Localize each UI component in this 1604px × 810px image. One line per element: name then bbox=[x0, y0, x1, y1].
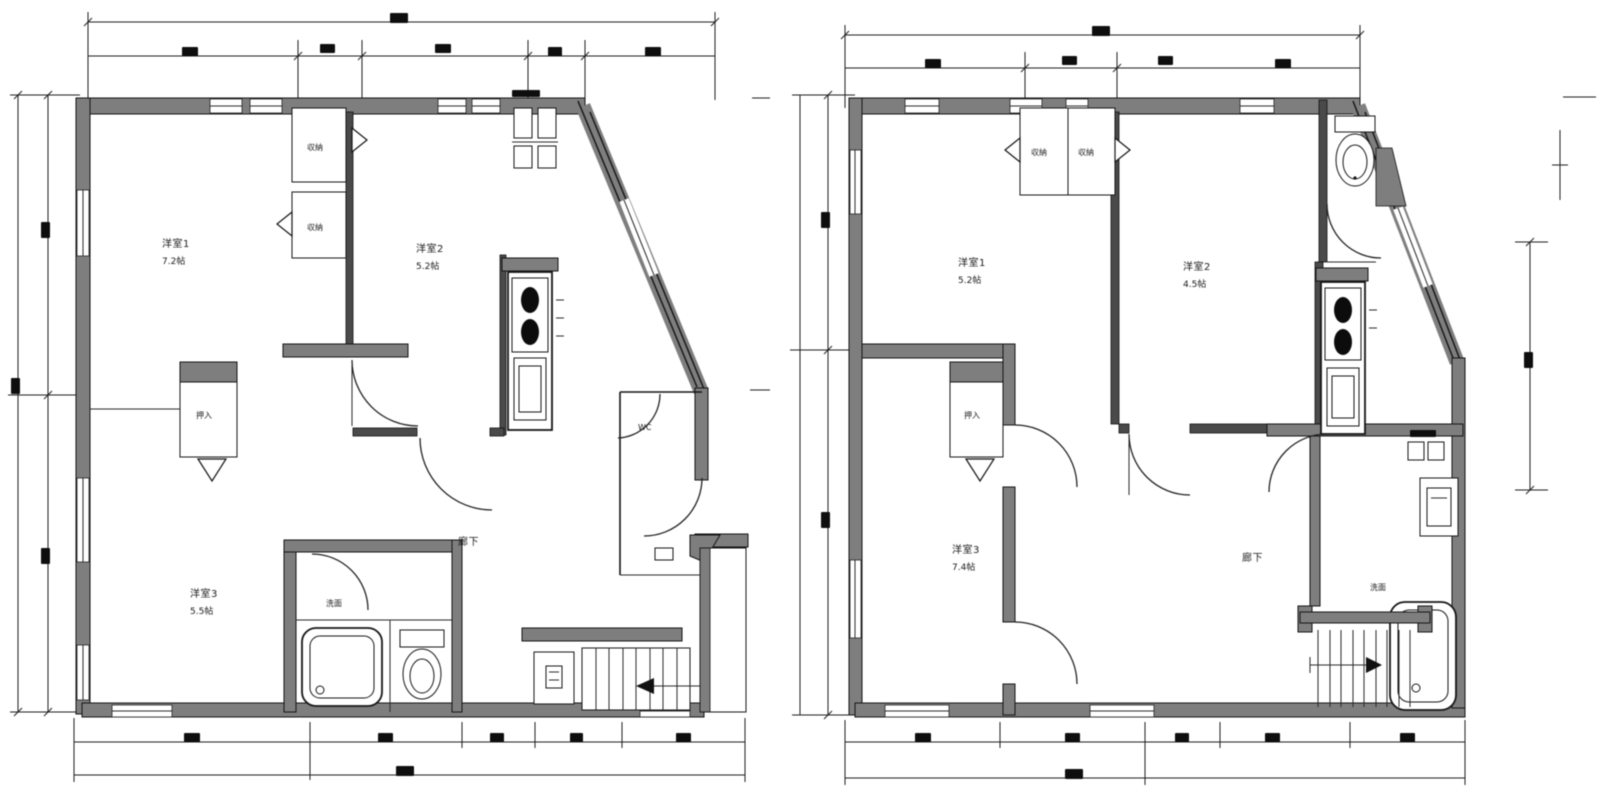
closet-top-1: 収納 bbox=[292, 108, 367, 182]
wc-fixture bbox=[655, 548, 673, 560]
closet-oshiire: 押入 bbox=[90, 362, 237, 481]
room3-label: 洋室3 bbox=[190, 587, 218, 600]
closet-label: 収納 bbox=[1078, 147, 1094, 157]
room1-label: 洋室1 bbox=[958, 256, 986, 269]
room1-label: 洋室1 bbox=[162, 237, 190, 250]
washbasin-icon bbox=[1420, 478, 1458, 536]
dimension-line-left bbox=[8, 91, 80, 716]
floor-plan-left: 収納 収納 押入 bbox=[0, 0, 770, 810]
bathtub-icon bbox=[302, 628, 382, 706]
room2-label: 洋室2 bbox=[416, 242, 444, 255]
floor-plan-right: 収納 収納 押入 bbox=[770, 0, 1604, 810]
kitchen-stove bbox=[1316, 268, 1377, 434]
closet-label: 収納 bbox=[1031, 147, 1047, 157]
room3-size: 7.4帖 bbox=[952, 561, 975, 573]
toilet-icon bbox=[1335, 116, 1375, 186]
room2-size: 5.2帖 bbox=[416, 260, 439, 272]
closet-label: 押入 bbox=[196, 410, 212, 420]
dimension-line-top bbox=[84, 12, 770, 112]
room3-size: 5.5帖 bbox=[190, 605, 213, 617]
exterior-walls bbox=[76, 98, 748, 717]
closet-top-2: 収納 bbox=[1068, 108, 1130, 195]
hall-label: 廊下 bbox=[1242, 551, 1263, 564]
hall-label: 廊下 bbox=[458, 535, 479, 548]
exterior-walls bbox=[849, 98, 1465, 717]
washroom-label: 洗面 bbox=[326, 598, 342, 608]
toilet-icon bbox=[400, 630, 444, 699]
closet-top-1: 収納 bbox=[1005, 108, 1068, 195]
room2-label: 洋室2 bbox=[1183, 260, 1211, 273]
room1-size: 5.2帖 bbox=[958, 274, 981, 286]
drawing-canvas: 収納 収納 押入 bbox=[0, 0, 1604, 810]
room3-label: 洋室3 bbox=[952, 543, 980, 556]
closet-top-2: 収納 bbox=[277, 192, 346, 258]
wc-label: WC bbox=[638, 423, 652, 432]
dimension-line-right bbox=[1515, 130, 1568, 494]
kitchen-stove bbox=[502, 258, 564, 430]
stairs-direction-arrow bbox=[1310, 657, 1382, 673]
washroom-label: 洗面 bbox=[1370, 582, 1386, 592]
door-arcs bbox=[312, 360, 702, 610]
room2-size: 4.5帖 bbox=[1183, 278, 1206, 290]
closet-label: 収納 bbox=[307, 142, 323, 152]
closet-label: 押入 bbox=[964, 410, 980, 420]
dimension-line-bottom bbox=[845, 720, 1465, 785]
closet-label: 収納 bbox=[307, 222, 323, 232]
closet-oshiire: 押入 bbox=[950, 362, 1003, 481]
dimension-line-bottom bbox=[74, 718, 745, 782]
room1-size: 7.2帖 bbox=[162, 255, 185, 267]
